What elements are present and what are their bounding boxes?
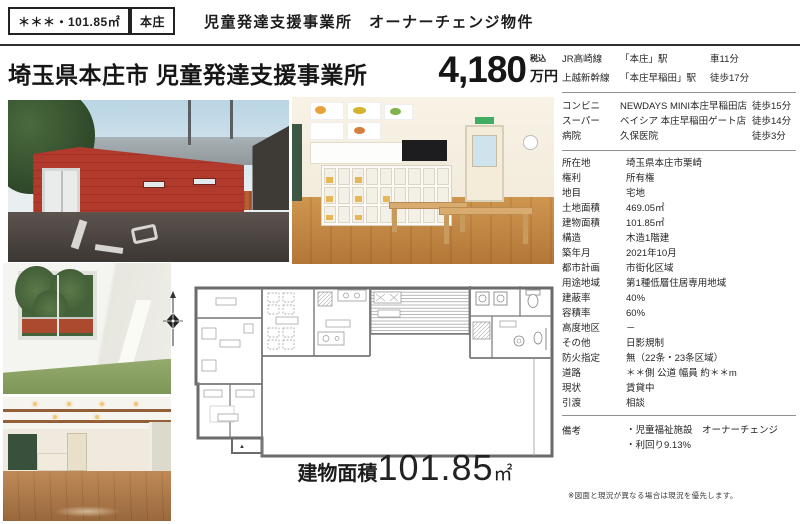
city-badge: 本庄 [130, 7, 175, 35]
detail-value: 埼玉県本庄市栗崎 [626, 156, 796, 171]
detail-row: 構造 木造1階建 [562, 231, 796, 246]
access-time: 徒歩17分 [710, 69, 796, 88]
detail-value: 所有権 [626, 171, 796, 186]
detail-value: 無（22条・23条区域） [626, 351, 796, 366]
header-title: 児童発達支援事業所 オーナーチェンジ物件 [204, 11, 534, 32]
price: 4,180 税込 万円 [418, 51, 558, 88]
power-pole [230, 100, 233, 139]
detail-row: 引渡 相談 [562, 396, 796, 411]
facility-type: スーパー [562, 114, 620, 129]
detail-label: 築年月 [562, 246, 626, 261]
facility-row: コンビニ NEWDAYS MINI本庄早稲田店 徒歩15分 [562, 99, 796, 114]
detail-value: 2021年10月 [626, 246, 796, 261]
north-arrow-icon [158, 290, 188, 352]
access-line-label: 上越新幹線 [562, 69, 620, 88]
detail-value: 日影規制 [626, 336, 796, 351]
building-area: 建物面積101.85㎡ [255, 447, 555, 489]
detail-row: 現状 賃貸中 [562, 381, 796, 396]
entrance-door [42, 168, 80, 215]
detail-value: － [626, 321, 796, 336]
detail-value: 木造1階建 [626, 231, 796, 246]
access-row: JR高崎線 「本庄」駅 車11分 [562, 50, 796, 69]
footnote: ※図面と現況が異なる場合は現況を優先します。 [568, 490, 798, 501]
detail-row: 権利 所有権 [562, 171, 796, 186]
detail-value: 40% [626, 291, 796, 306]
building-area-value: 101.85 [377, 447, 493, 488]
chalkboard [8, 434, 37, 470]
door [465, 125, 504, 202]
access-row: 上越新幹線 「本庄早稲田」駅 徒歩17分 [562, 69, 796, 88]
classroom-photo [292, 97, 554, 264]
area-badge: ＊＊＊・101.85㎡ [8, 7, 130, 35]
side-window [149, 422, 171, 477]
building-area-unit: ㎡ [494, 464, 513, 485]
detail-row: 道路 ＊＊側 公道 幅員 約＊＊m [562, 366, 796, 381]
facility-time: 徒歩15分 [752, 99, 796, 114]
listing-title: 埼玉県本庄市 児童発達支援事業所 [8, 56, 367, 90]
detail-row: 所在地 埼玉県本庄市栗崎 [562, 156, 796, 171]
exterior-photo [8, 100, 289, 262]
poster [347, 122, 381, 140]
detail-value: 相談 [626, 396, 796, 411]
facility-type: コンビニ [562, 99, 620, 114]
detail-label: 引渡 [562, 396, 626, 411]
facility-row: 病院 久保医院 徒歩3分 [562, 129, 796, 144]
facility-row: スーパー ベイシア 本庄早稲田ゲート店 徒歩14分 [562, 114, 796, 129]
ceiling [3, 397, 171, 429]
exit-sign [475, 117, 493, 124]
detail-value: 第1種低層住居専用地域 [626, 276, 796, 291]
facility-name: 久保医院 [620, 129, 752, 144]
remarks-lines: ・児童福祉施設 オーナーチェンジ・利回り9.13% [626, 423, 796, 453]
detail-label: 土地面積 [562, 201, 626, 216]
detail-label: 都市計画 [562, 261, 626, 276]
table-leg [392, 209, 397, 232]
detail-row: 土地面積 469.05㎡ [562, 201, 796, 216]
detail-label: 権利 [562, 171, 626, 186]
access-time: 車11分 [710, 50, 796, 69]
detail-label: 建物面積 [562, 216, 626, 231]
svg-text:▲: ▲ [239, 444, 245, 450]
green-room-photo [3, 263, 171, 394]
facilities-section: コンビニ NEWDAYS MINI本庄早稲田店 徒歩15分 スーパー ベイシア … [562, 96, 796, 146]
section-divider [562, 415, 796, 416]
facility-time: 徒歩3分 [752, 129, 796, 144]
poster [384, 104, 413, 121]
poster [310, 102, 344, 120]
price-value: 4,180 [438, 51, 526, 88]
low-table [439, 207, 533, 215]
window [18, 271, 97, 340]
floor-plan: ▲ [186, 266, 556, 466]
detail-row: 都市計画 市街化区域 [562, 261, 796, 276]
info-column: JR高崎線 「本庄」駅 車11分 上越新幹線 「本庄早稲田」駅 徒歩17分 コン… [562, 50, 796, 453]
window [193, 178, 215, 185]
tv-monitor [402, 140, 447, 165]
playroom-photo [3, 397, 171, 521]
detail-row: 築年月 2021年10月 [562, 246, 796, 261]
access-station: 「本庄」駅 [620, 50, 710, 69]
cubby-shelves [321, 165, 452, 225]
detail-label: 建蔽率 [562, 291, 626, 306]
detail-value: 宅地 [626, 186, 796, 201]
poster [310, 122, 344, 140]
facility-time: 徒歩14分 [752, 114, 796, 129]
remark-line: ・利回り9.13% [626, 438, 796, 453]
detail-label: その他 [562, 336, 626, 351]
detail-value: 101.85㎡ [626, 216, 796, 231]
detail-label: 道路 [562, 366, 626, 381]
table-leg [523, 214, 528, 244]
door [67, 433, 87, 471]
detail-label: 容積率 [562, 306, 626, 321]
detail-label: 所在地 [562, 156, 626, 171]
detail-value: ＊＊側 公道 幅員 約＊＊m [626, 366, 796, 381]
detail-label: 防火指定 [562, 351, 626, 366]
facility-name: ベイシア 本庄早稲田ゲート店 [620, 114, 752, 129]
price-tax-note: 税込 [530, 53, 558, 64]
building-area-label: 建物面積 [297, 463, 377, 485]
header-divider [0, 44, 800, 46]
detail-value: 469.05㎡ [626, 201, 796, 216]
remarks-label: 備考 [562, 423, 626, 453]
detail-row: 防火指定 無（22条・23条区域） [562, 351, 796, 366]
detail-value: 60% [626, 306, 796, 321]
detail-label: 現状 [562, 381, 626, 396]
detail-row: 建蔽率 40% [562, 291, 796, 306]
facility-type: 病院 [562, 129, 620, 144]
detail-label: 構造 [562, 231, 626, 246]
section-divider [562, 150, 796, 151]
access-line-label: JR高崎線 [562, 50, 620, 69]
access-section: JR高崎線 「本庄」駅 車11分 上越新幹線 「本庄早稲田」駅 徒歩17分 [562, 50, 796, 88]
access-station: 「本庄早稲田」駅 [620, 69, 710, 88]
detail-row: 建物面積 101.85㎡ [562, 216, 796, 231]
whiteboard [310, 142, 404, 164]
details-section: 所在地 埼玉県本庄市栗崎 権利 所有権 地目 宅地 土地面積 469.05㎡ 建… [562, 154, 796, 411]
property-flyer: ＊＊＊・101.85㎡ 本庄 児童発達支援事業所 オーナーチェンジ物件 埼玉県本… [0, 0, 800, 524]
detail-label: 地目 [562, 186, 626, 201]
chalkboard [292, 124, 302, 201]
power-pole [188, 100, 191, 145]
section-divider [562, 92, 796, 93]
detail-row: 容積率 60% [562, 306, 796, 321]
wood-floor [3, 471, 171, 521]
remarks-section: 備考 ・児童福祉施設 オーナーチェンジ・利回り9.13% [562, 419, 796, 453]
facility-name: NEWDAYS MINI本庄早稲田店 [620, 99, 752, 114]
poster [347, 102, 381, 120]
detail-value: 市街化区域 [626, 261, 796, 276]
price-unit: 万円 [530, 66, 558, 86]
detail-label: 用途地域 [562, 276, 626, 291]
detail-row: 地目 宅地 [562, 186, 796, 201]
detail-label: 高度地区 [562, 321, 626, 336]
window [143, 181, 165, 188]
table-leg [444, 214, 449, 244]
remark-line: ・児童福祉施設 オーナーチェンジ [626, 423, 796, 438]
detail-value: 賃貸中 [626, 381, 796, 396]
detail-row: 高度地区 － [562, 321, 796, 336]
shelf-counter [37, 453, 69, 472]
detail-row: 用途地域 第1種低層住居専用地域 [562, 276, 796, 291]
detail-row: その他 日影規制 [562, 336, 796, 351]
